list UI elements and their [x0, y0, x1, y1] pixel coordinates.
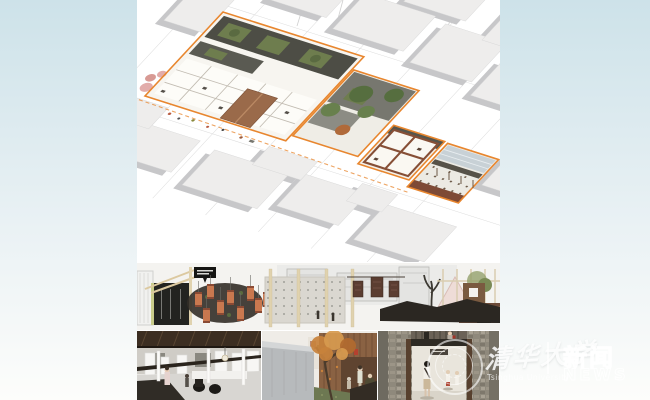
office-interior-rendering	[137, 331, 261, 400]
page-background: 清华大学 Tsinghua University 新闻 NEWS	[0, 0, 650, 400]
university-name-script: 清华大学	[484, 332, 606, 377]
watermark-divider	[547, 342, 549, 374]
gallery-interior-rendering	[378, 331, 499, 400]
left-facade	[137, 271, 153, 325]
courtyard-tree-rendering	[262, 331, 377, 400]
article-figure[interactable]	[137, 0, 500, 400]
news-label-cn: 新闻	[563, 338, 615, 373]
axonometric-masterplan-rendering	[137, 0, 500, 262]
interior-collage-row	[137, 331, 499, 400]
pendant-lamp	[222, 355, 228, 361]
street-elevation-collage	[137, 263, 500, 330]
news-label-en: NEWS	[563, 365, 629, 384]
dark-shopfront	[151, 283, 191, 325]
